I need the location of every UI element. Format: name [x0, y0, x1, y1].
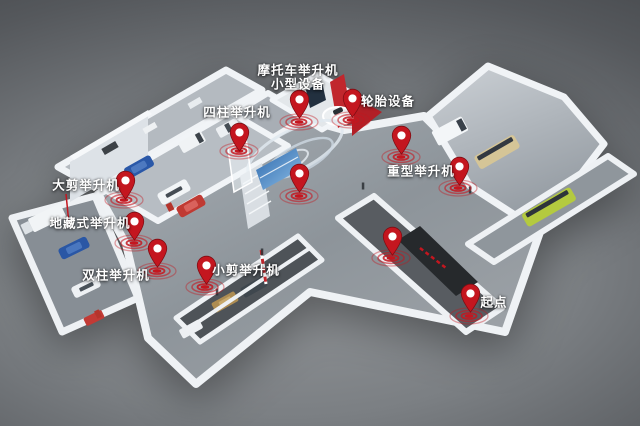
- marker-pin-center-exhibit[interactable]: [289, 163, 310, 194]
- marker-pin-four-post-lift[interactable]: [229, 122, 250, 153]
- marker-pin-start-point[interactable]: [460, 283, 481, 314]
- marker-pin-small-scissor-lift[interactable]: [196, 255, 217, 286]
- marker-pin-two-post-lift[interactable]: [147, 238, 168, 269]
- marker-pin-tire-equipment[interactable]: [342, 88, 363, 119]
- building-scene: [0, 0, 640, 426]
- marker-pin-large-scissor-lift[interactable]: [115, 170, 136, 201]
- marker-pin-in-ground-lift[interactable]: [124, 211, 145, 242]
- marker-pin-heavy-duty-lift-2[interactable]: [449, 156, 470, 187]
- marker-pin-heavy-duty-lift[interactable]: [391, 125, 412, 156]
- marker-pin-motorcycle-lift-small-equipment[interactable]: [289, 89, 310, 120]
- marker-pin-corridor-exhibit[interactable]: [382, 226, 403, 257]
- facility-map: 摩托车举升机 小型设备 四柱举升机 轮胎设备 大剪举升机 重型举升机 地藏式举升…: [0, 0, 640, 426]
